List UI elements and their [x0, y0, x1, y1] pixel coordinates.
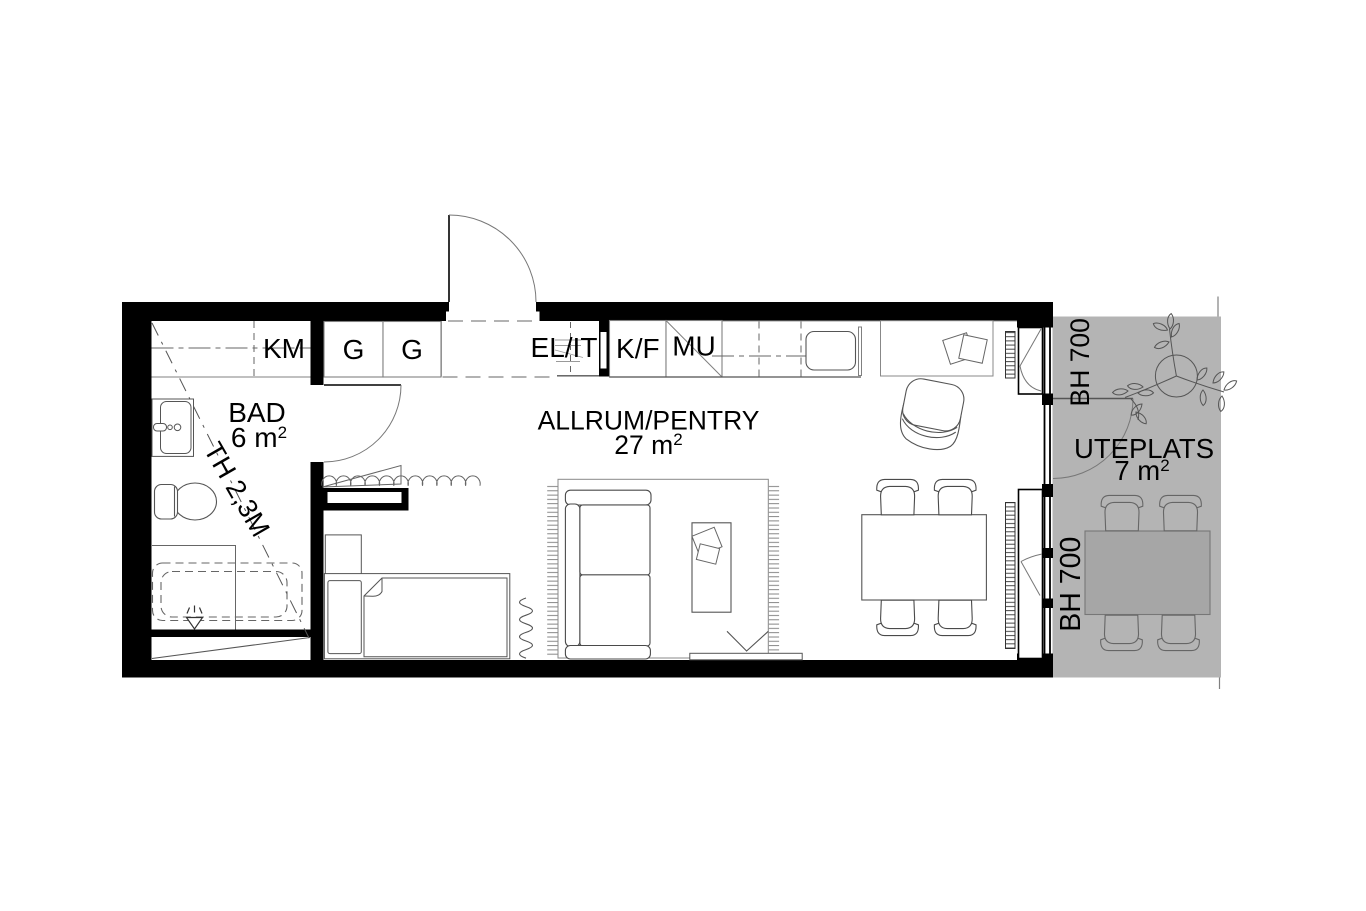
svg-text:EL/IT: EL/IT: [531, 332, 598, 363]
svg-text:G: G: [343, 334, 365, 365]
svg-text:K/F: K/F: [616, 333, 660, 364]
svg-text:BH 700: BH 700: [1065, 318, 1095, 406]
svg-text:G: G: [401, 334, 423, 365]
svg-text:BH 700: BH 700: [1055, 537, 1087, 632]
svg-text:27 m2: 27 m2: [614, 430, 682, 460]
svg-text:KM: KM: [263, 333, 305, 364]
svg-text:MU: MU: [672, 331, 716, 362]
